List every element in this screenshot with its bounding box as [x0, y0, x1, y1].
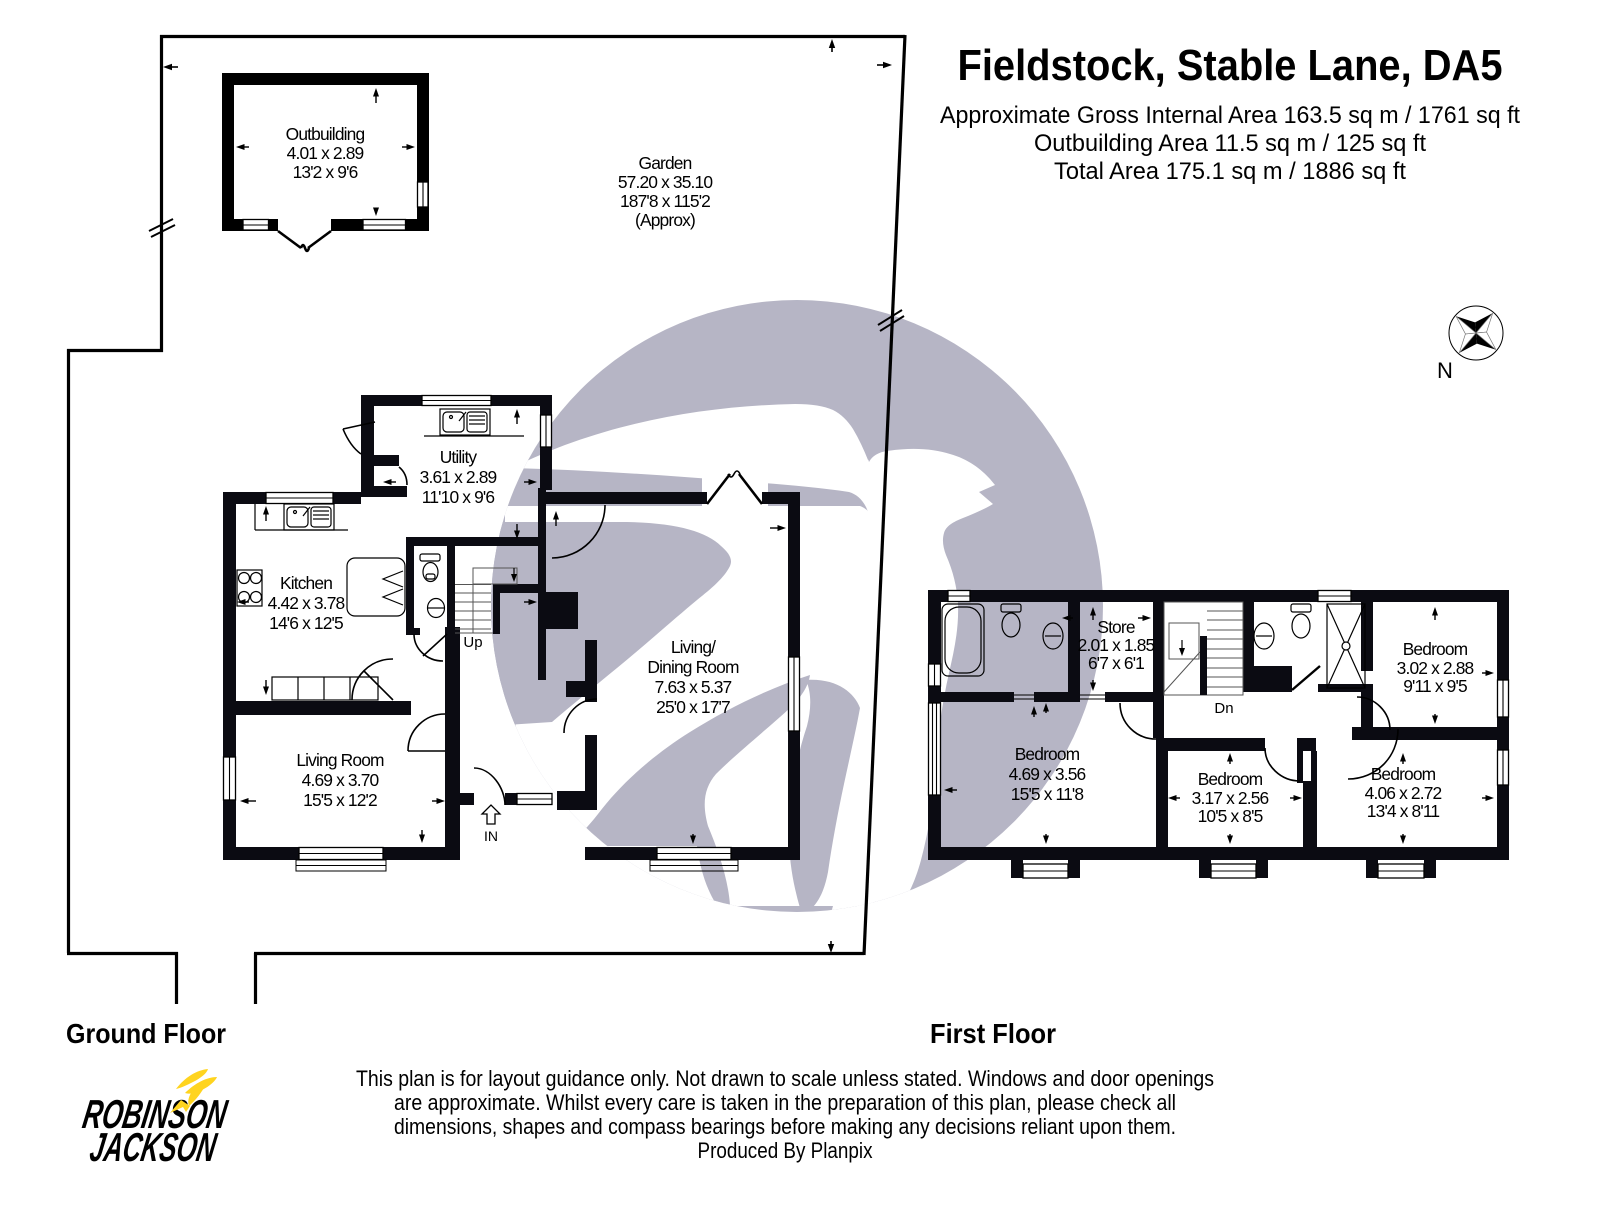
svg-text:Dining Room: Dining Room: [647, 657, 739, 677]
svg-text:Total Area 175.1 sq m / 1886 s: Total Area 175.1 sq m / 1886 sq ft: [1054, 158, 1406, 185]
svg-text:10'5 x 8'5: 10'5 x 8'5: [1198, 806, 1263, 826]
svg-text:Up: Up: [463, 634, 482, 651]
svg-text:4.06 x 2.72: 4.06 x 2.72: [1365, 783, 1442, 803]
svg-text:Living Room: Living Room: [296, 750, 384, 770]
svg-text:3.17 x 2.56: 3.17 x 2.56: [1192, 788, 1269, 808]
svg-text:dimensions, shapes and compass: dimensions, shapes and compass bearings …: [394, 1114, 1176, 1139]
svg-text:First Floor: First Floor: [930, 1018, 1056, 1049]
svg-text:Dn: Dn: [1214, 700, 1233, 717]
svg-text:Fieldstock, Stable Lane, DA5: Fieldstock, Stable Lane, DA5: [958, 41, 1503, 90]
svg-text:Bedroom: Bedroom: [1371, 764, 1436, 784]
svg-text:Bedroom: Bedroom: [1403, 639, 1468, 659]
svg-text:9'11 x 9'5: 9'11 x 9'5: [1403, 676, 1467, 696]
svg-text:Ground Floor: Ground Floor: [66, 1018, 226, 1049]
svg-text:14'6 x 12'5: 14'6 x 12'5: [269, 613, 343, 633]
svg-text:187'8 x 115'2: 187'8 x 115'2: [620, 191, 710, 211]
svg-text:Produced By Planpix: Produced By Planpix: [698, 1138, 873, 1163]
svg-text:7.63 x 5.37: 7.63 x 5.37: [655, 677, 732, 697]
svg-text:Outbuilding: Outbuilding: [286, 124, 365, 144]
svg-text:2.01 x 1.85: 2.01 x 1.85: [1078, 635, 1155, 655]
svg-text:4.42 x 3.78: 4.42 x 3.78: [268, 593, 345, 613]
svg-text:Bedroom: Bedroom: [1015, 744, 1080, 764]
svg-text:4.69 x 3.70: 4.69 x 3.70: [302, 770, 379, 790]
svg-text:JACKSON: JACKSON: [87, 1124, 221, 1170]
svg-text:3.02 x 2.88: 3.02 x 2.88: [1397, 658, 1474, 678]
svg-text:57.20 x 35.10: 57.20 x 35.10: [618, 172, 713, 192]
svg-text:Living/: Living/: [671, 637, 716, 657]
svg-text:Kitchen: Kitchen: [280, 573, 332, 593]
svg-text:Approximate Gross Internal Are: Approximate Gross Internal Area 163.5 sq…: [940, 102, 1520, 129]
svg-text:This plan is for layout guidan: This plan is for layout guidance only. N…: [356, 1066, 1214, 1091]
svg-text:6'7 x 6'1: 6'7 x 6'1: [1088, 653, 1144, 673]
svg-text:13'4 x 8'11: 13'4 x 8'11: [1367, 801, 1440, 821]
svg-text:(Approx): (Approx): [635, 210, 695, 230]
svg-text:are approximate. Whilst every: are approximate. Whilst every care is ta…: [394, 1090, 1176, 1115]
svg-text:Garden: Garden: [639, 153, 692, 173]
svg-text:Bedroom: Bedroom: [1198, 769, 1263, 789]
svg-text:Outbuilding Area 11.5 sq m / 1: Outbuilding Area 11.5 sq m / 125 sq ft: [1034, 130, 1426, 157]
svg-text:4.69 x 3.56: 4.69 x 3.56: [1009, 764, 1086, 784]
svg-text:Utility: Utility: [440, 447, 478, 467]
svg-text:3.61 x 2.89: 3.61 x 2.89: [420, 467, 497, 487]
svg-text:4.01 x 2.89: 4.01 x 2.89: [287, 143, 364, 163]
svg-text:N: N: [1437, 358, 1453, 383]
svg-text:15'5 x 11'8: 15'5 x 11'8: [1011, 784, 1084, 804]
svg-text:15'5 x 12'2: 15'5 x 12'2: [303, 790, 377, 810]
svg-text:Store: Store: [1097, 617, 1134, 637]
svg-text:11'10 x 9'6: 11'10 x 9'6: [422, 487, 495, 507]
svg-text:25'0 x 17'7: 25'0 x 17'7: [656, 697, 730, 717]
svg-text:IN: IN: [484, 828, 498, 844]
svg-text:13'2 x 9'6: 13'2 x 9'6: [293, 162, 358, 182]
